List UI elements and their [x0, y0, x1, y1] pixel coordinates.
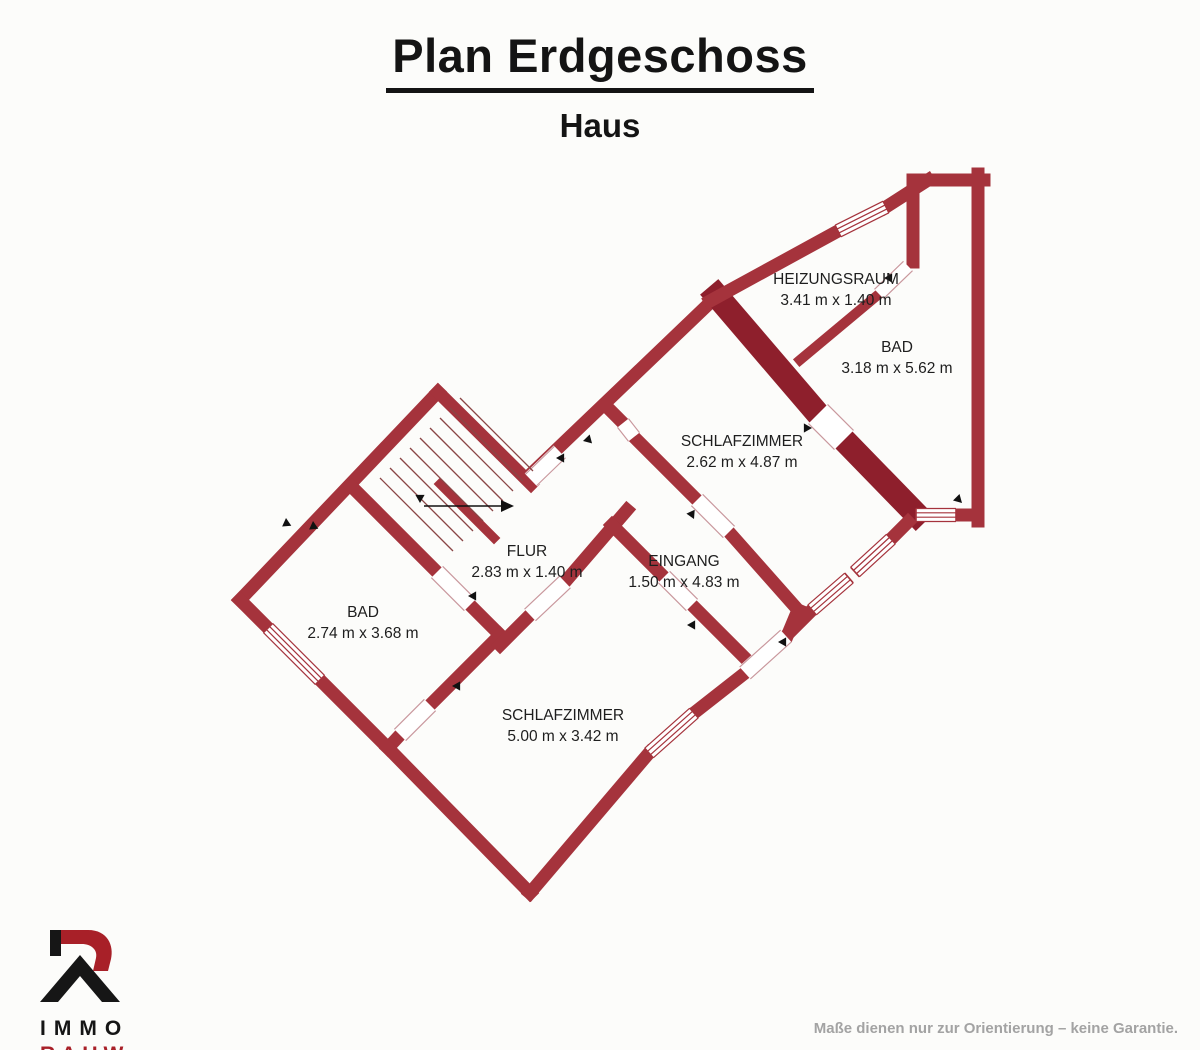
floorplan-drawing: HEIZUNGSRAUM3.41 m x 1.40 mBAD3.18 m x 5… [0, 0, 1200, 1050]
stairs-arrow-head [501, 500, 514, 512]
brand-name-line1: IMMO [40, 1017, 236, 1041]
stair-tread [410, 448, 483, 521]
wall-segment [240, 392, 438, 600]
window [838, 207, 886, 231]
door-swing-marker [280, 518, 293, 531]
window-glazing-line [650, 715, 695, 755]
door-opening [818, 414, 844, 440]
wall-segment [891, 522, 908, 539]
room-label: FLUR2.83 m x 1.40 m [471, 543, 582, 581]
wall-segment [430, 635, 500, 705]
door-opening [531, 452, 560, 480]
window [855, 539, 891, 572]
stair-tread [460, 398, 533, 471]
wall-segment [352, 487, 437, 572]
wall-segment [710, 231, 838, 301]
wall-segment [388, 748, 530, 893]
wall-segment [320, 680, 388, 748]
brand-logo: IMMO RAUW [36, 926, 236, 1050]
wall-segment [605, 405, 623, 423]
wall-segment [440, 484, 494, 538]
wall-segment [530, 753, 649, 893]
brand-name-line2: RAUW [40, 1043, 236, 1050]
room-label: SCHLAFZIMMER2.62 m x 4.87 m [681, 433, 803, 471]
stair-tread [450, 408, 523, 481]
wall-segment [729, 532, 798, 610]
room-label: BAD3.18 m x 5.62 m [841, 339, 952, 377]
wall-segment [694, 673, 745, 713]
wall-segment [692, 605, 750, 663]
door-swing-marker [687, 619, 700, 632]
room-label: BAD2.74 m x 3.68 m [307, 604, 418, 642]
wall-segment [240, 600, 268, 628]
door-opening [623, 423, 634, 437]
stair-tread [400, 458, 473, 531]
window [812, 578, 849, 610]
window [649, 713, 694, 753]
door-swing-marker [583, 433, 595, 445]
wall-segment [844, 440, 916, 514]
wall-segment [500, 615, 530, 645]
room-label: SCHLAFZIMMER5.00 m x 3.42 m [502, 707, 624, 745]
window-glazing-line [648, 711, 693, 751]
brand-logo-mark [36, 926, 126, 1006]
floorplan-page: Plan Erdgeschoss Haus HEIZUNGSRAUM3.41 m… [0, 0, 1200, 1050]
logo-stem [50, 930, 61, 956]
disclaimer-text: Maße dienen nur zur Orientierung – keine… [814, 1020, 1178, 1037]
door-swing-marker [953, 494, 962, 503]
door-swing-marker [414, 490, 427, 503]
